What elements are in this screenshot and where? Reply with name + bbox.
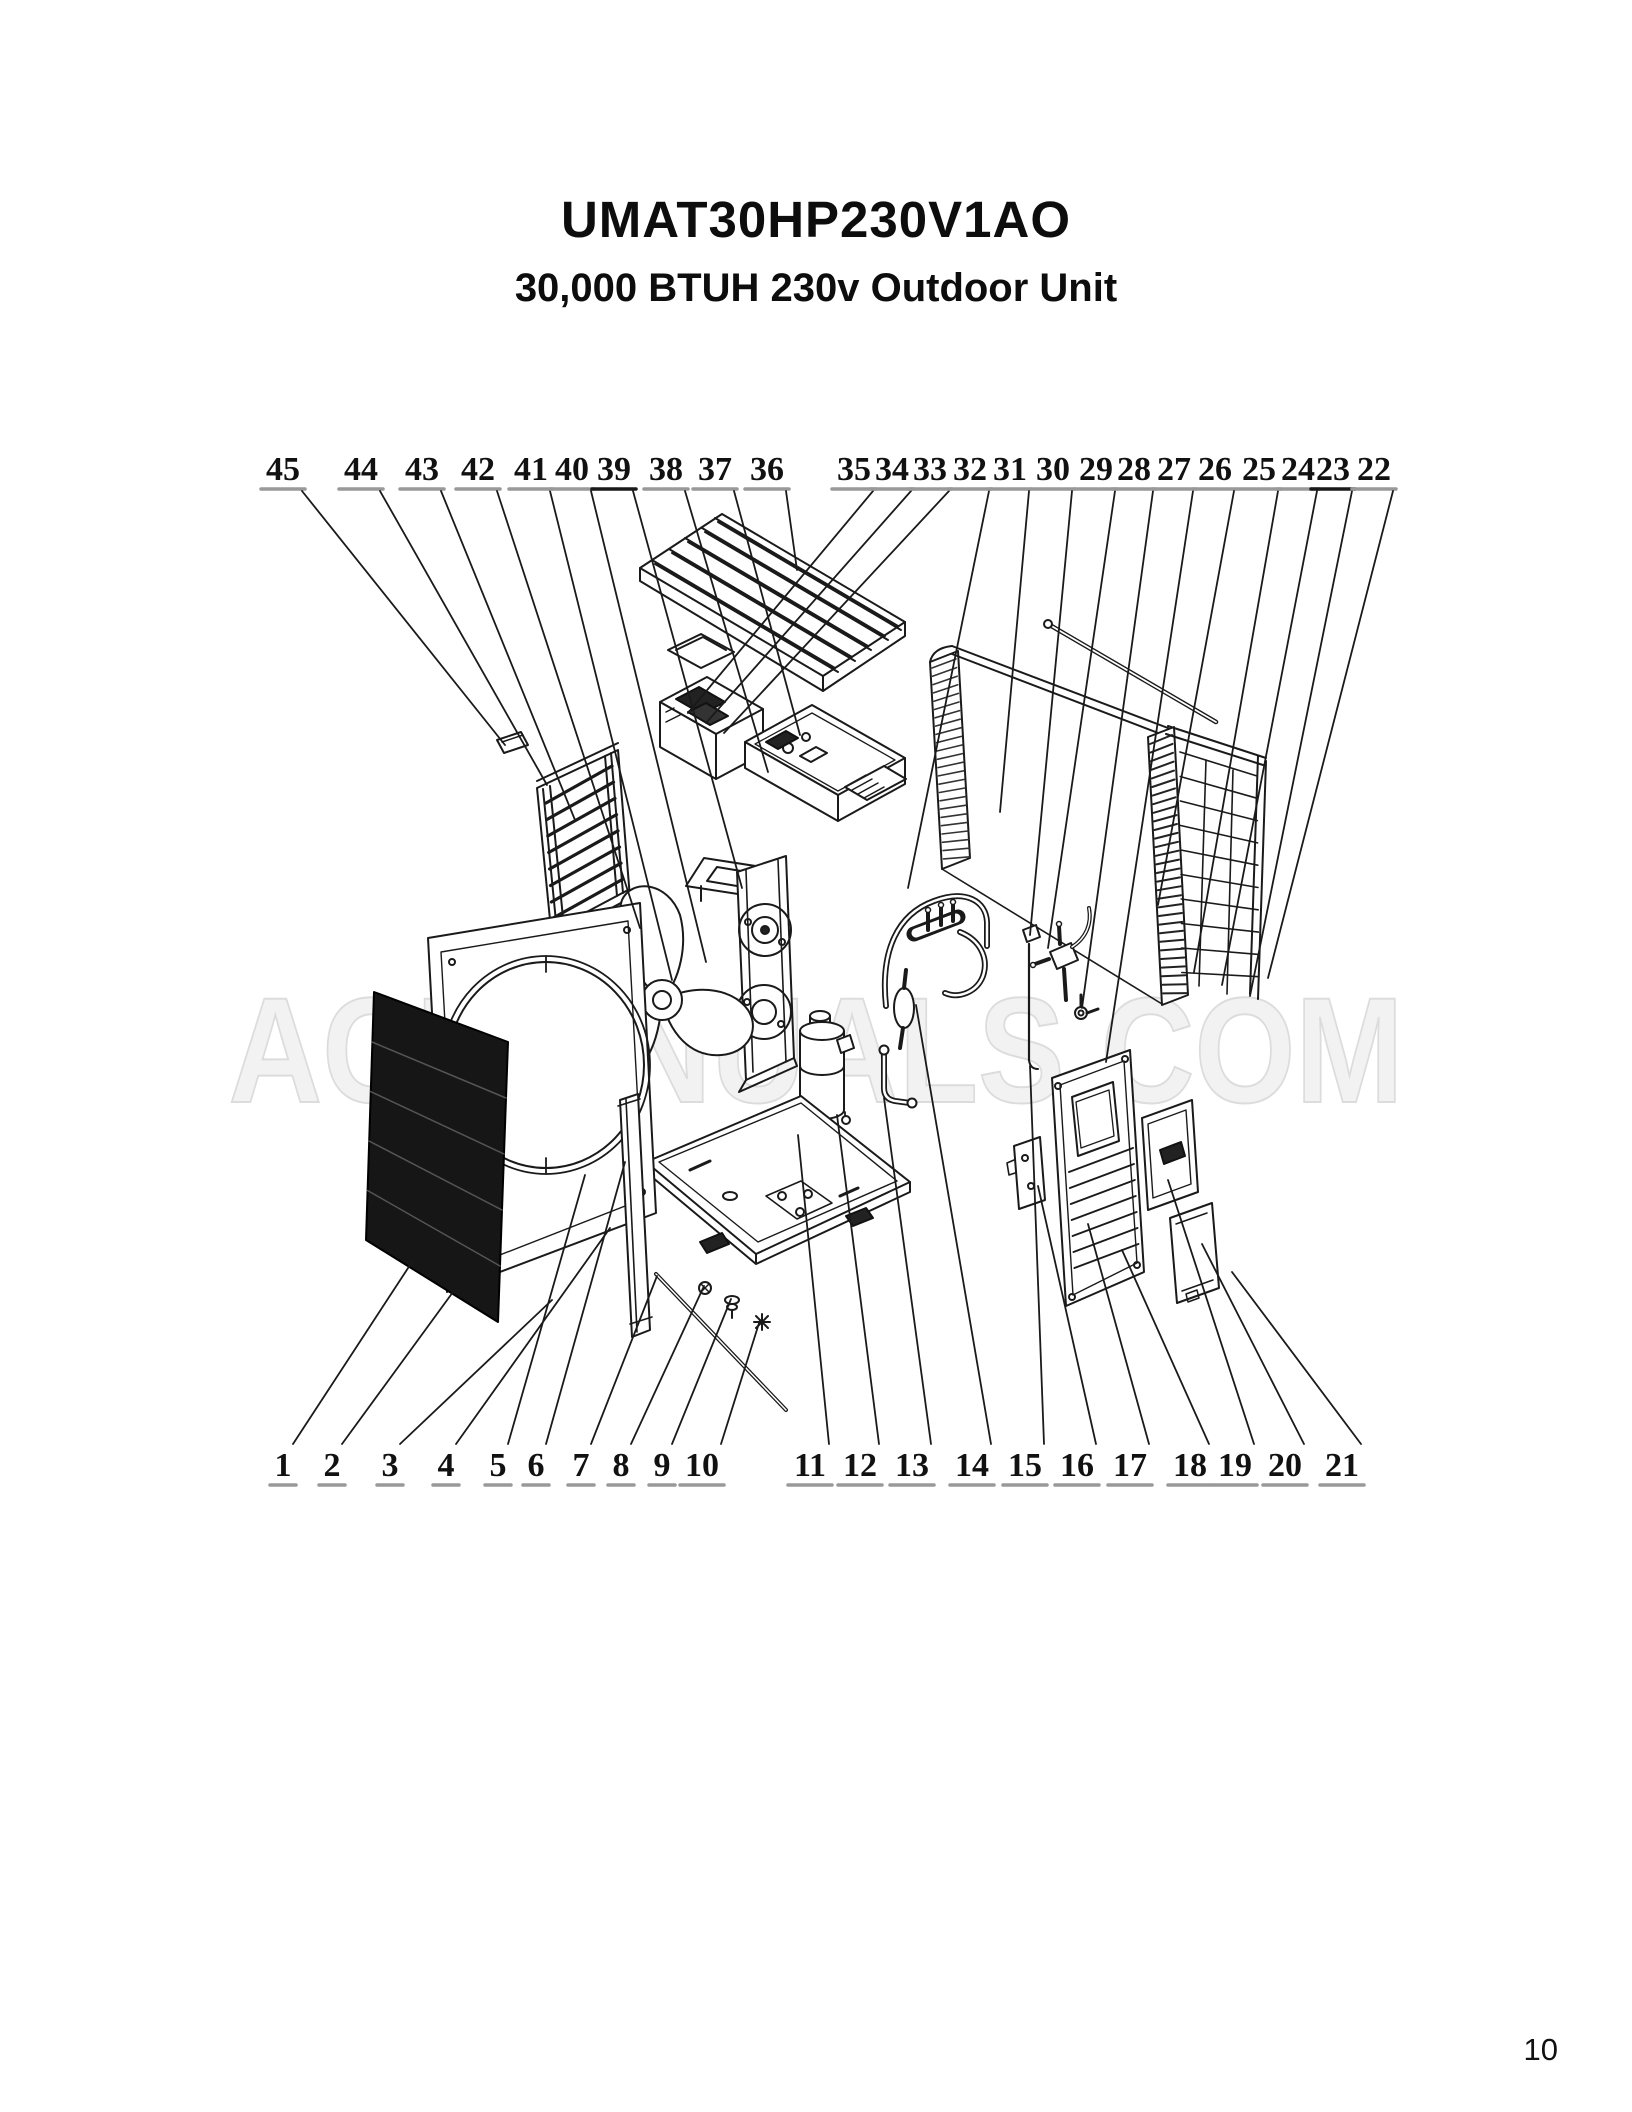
callout-26: 26 [1158,451,1237,905]
leader-line [441,491,575,820]
leader-line [591,1276,657,1444]
part-number: 4 [438,1447,455,1484]
callout-30: 30 [1030,451,1075,935]
leader-line [1082,491,1153,1008]
part-number: 43 [405,451,439,488]
part-number: 23 [1316,451,1350,488]
part-number: 45 [266,451,300,488]
part-number: 16 [1060,1447,1094,1484]
part-number: 22 [1357,451,1391,488]
fastener-parts [656,1274,786,1410]
callout-29: 29 [1048,451,1118,948]
leader-line [1158,491,1234,905]
part-number: 27 [1157,451,1191,488]
part-number: 42 [461,451,495,488]
part-number: 41 [514,451,548,488]
control-box [745,705,906,821]
part-number: 32 [953,451,987,488]
terminal-bracket [1007,1137,1045,1209]
part-number: 19 [1218,1447,1252,1484]
part-number: 18 [1173,1447,1207,1484]
callout-25: 25 [1194,451,1281,972]
leader-line [342,1292,453,1444]
leader-line [1232,1272,1361,1444]
part-number: 31 [993,451,1027,488]
callout-3: 3 [377,1300,552,1485]
part-number: 2 [324,1447,341,1484]
part-number: 14 [955,1447,989,1484]
part-number: 12 [843,1447,877,1484]
part-number: 15 [1008,1447,1042,1484]
cover-plate [1142,1100,1198,1210]
callout-43: 43 [400,451,575,820]
callout-31: 31 [988,451,1032,812]
part-number: 35 [837,451,871,488]
part-number: 25 [1242,451,1276,488]
part-number: 33 [913,451,947,488]
leader-line [1030,491,1072,935]
part-number: 38 [649,451,683,488]
part-number: 6 [528,1447,545,1484]
part-number: 5 [490,1447,507,1484]
part-number: 8 [613,1447,630,1484]
part-number: 17 [1113,1447,1147,1484]
leader-line [1268,491,1393,978]
manual-page: UMAT30HP230V1AO 30,000 BTUH 230v Outdoor… [0,0,1632,2112]
electrical-box-lid [668,634,734,668]
leader-line [884,1098,931,1444]
part-number: 39 [597,451,631,488]
part-number: 11 [794,1447,826,1484]
part-number: 3 [382,1447,399,1484]
part-number: 26 [1198,451,1232,488]
callout-13: 13 [884,1098,934,1485]
part-number: 37 [698,451,732,488]
part-number: 21 [1325,1447,1359,1484]
part-number: 36 [750,451,784,488]
leader-line [1048,491,1115,948]
part-number: 28 [1117,451,1151,488]
part-number: 20 [1268,1447,1302,1484]
valve-cover [1170,1203,1219,1303]
callout-22: 22 [1268,451,1396,978]
part-number: 24 [1281,451,1315,488]
part-number: 10 [685,1447,719,1484]
leader-line [380,491,547,785]
part-number: 44 [344,451,378,488]
leader-line [1202,1244,1304,1444]
part-number: 29 [1079,451,1113,488]
leader-line [1194,491,1278,972]
leader-line [1000,491,1029,812]
part-number: 13 [895,1447,929,1484]
leader-line [302,491,505,745]
callout-28: 28 [1082,451,1156,1008]
page-number: 10 [1524,2032,1558,2068]
callout-23: 23 [1250,451,1355,996]
motor-support [737,856,797,1092]
part-number: 9 [654,1447,671,1484]
part-number: 40 [555,451,589,488]
part-number: 30 [1036,451,1070,488]
part-number: 1 [275,1447,292,1484]
exploded-parts-diagram: ACMANUALS.COM [0,0,1632,2112]
part-number: 34 [875,451,909,488]
part-number: 7 [573,1447,590,1484]
callout-10: 10 [680,1320,760,1485]
front-grille [366,992,508,1322]
leader-line [293,1262,412,1444]
leader-line [721,1320,760,1444]
